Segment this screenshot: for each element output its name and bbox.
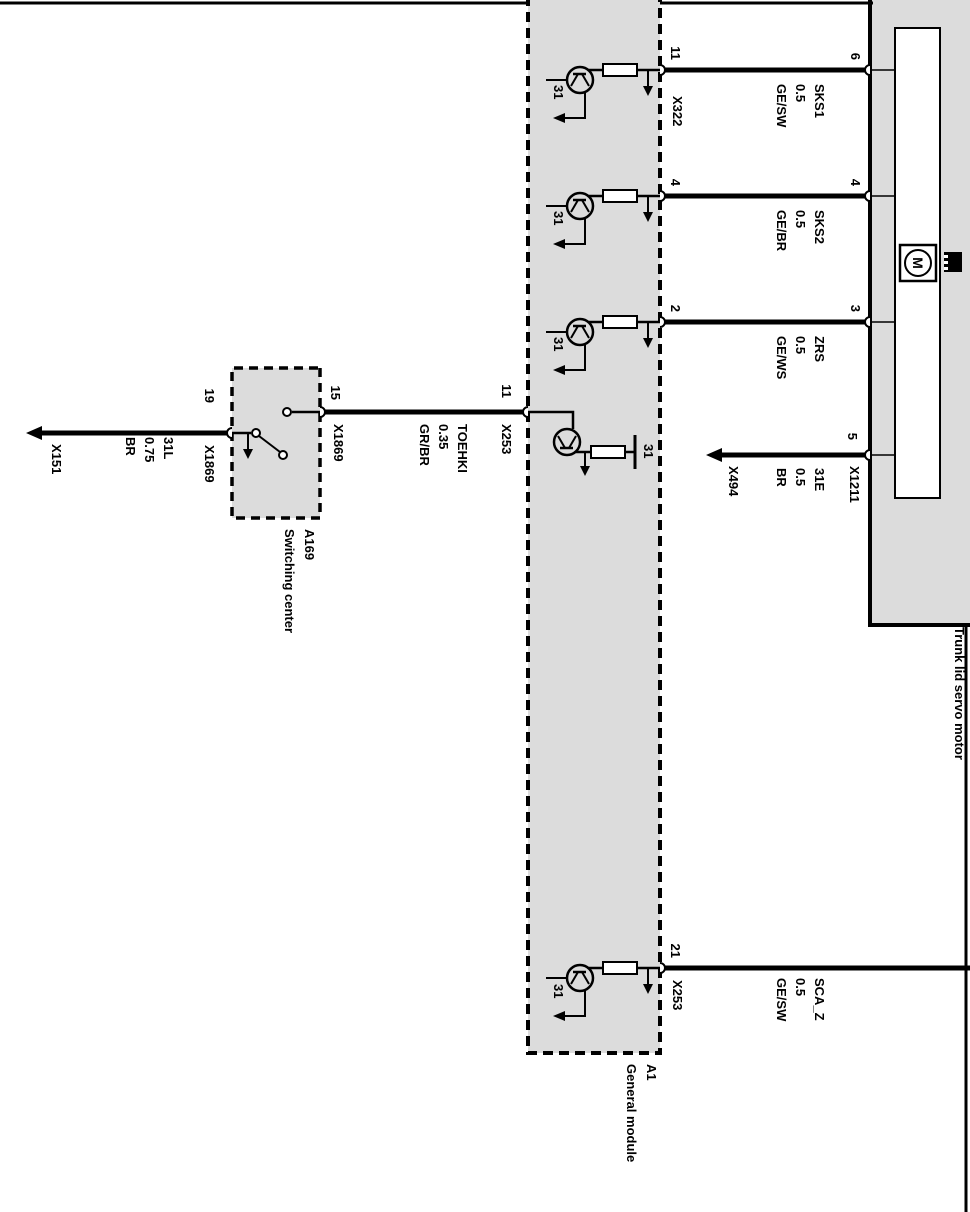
switching-center-id: A169 <box>302 529 317 560</box>
ground-31-sks2: 31 <box>551 211 566 225</box>
connector-x1211: X1211 <box>847 466 862 503</box>
wire-label-toehki: TOEHKI0.35GR/BR <box>415 424 472 473</box>
wiring-diagram-page: M <box>0 0 970 1212</box>
general-module-box <box>528 0 660 1053</box>
connector-x1869-bot: X1869 <box>202 445 217 483</box>
wires <box>42 70 970 968</box>
module-pin-11: 11 <box>668 30 683 60</box>
ground-31-scaz: 31 <box>551 984 566 998</box>
svg-text:M: M <box>910 257 926 269</box>
motor-pin-4: 4 <box>848 156 863 186</box>
module-pin-21: 21 <box>668 928 683 958</box>
motor-pin-6: 6 <box>848 30 863 60</box>
motor-pin-5: 5 <box>845 410 860 440</box>
ground-31-toehki: 31 <box>641 444 656 458</box>
general-module-id: A1 <box>644 1064 659 1081</box>
switching-center-box <box>232 368 320 518</box>
wire-label-scaz: SCA_Z0.5GE/SW <box>772 978 829 1021</box>
general-module-name: General module <box>624 1064 639 1162</box>
page-frame <box>0 3 966 1212</box>
switch-pin-15: 15 <box>328 370 343 400</box>
connector-x494: X494 <box>726 466 741 496</box>
servo-motor-box: M <box>870 0 970 625</box>
wire-label-sks1: SKS10.5GE/SW <box>772 84 829 127</box>
latch-icon <box>944 252 962 272</box>
diagram-canvas: M <box>0 0 970 1212</box>
wire-label-31l: 31L0.75BR <box>121 437 178 462</box>
connector-x253-mid: X253 <box>499 424 514 454</box>
module-pin-2: 2 <box>668 282 683 312</box>
switch-pin-19: 19 <box>202 373 217 403</box>
wire-label-31e: 31E0.5BR <box>772 468 829 491</box>
module-pin-4: 4 <box>668 156 683 186</box>
motor-icon: M <box>900 245 936 281</box>
wire-label-sks2: SKS20.5GE/BR <box>772 210 829 251</box>
servo-motor-label: Trunk lid servo motor <box>952 627 967 760</box>
connector-x322: X322 <box>670 96 685 126</box>
ground-arrow-x151 <box>26 426 42 440</box>
connector-x1869-top: X1869 <box>331 424 346 462</box>
diagram-artwork: M <box>0 0 970 1212</box>
ground-arrow-x494 <box>706 448 722 462</box>
connector-x253-top: X253 <box>670 980 685 1010</box>
ground-31-sks1: 31 <box>551 85 566 99</box>
switching-center-name: Switching center <box>282 529 297 633</box>
ground-31-zrs: 31 <box>551 337 566 351</box>
motor-pin-3: 3 <box>848 282 863 312</box>
wire-label-zrs: ZRS0.5GE/WS <box>772 336 829 379</box>
connector-x151: X151 <box>49 444 64 474</box>
module-pin-11b: 11 <box>499 368 514 398</box>
